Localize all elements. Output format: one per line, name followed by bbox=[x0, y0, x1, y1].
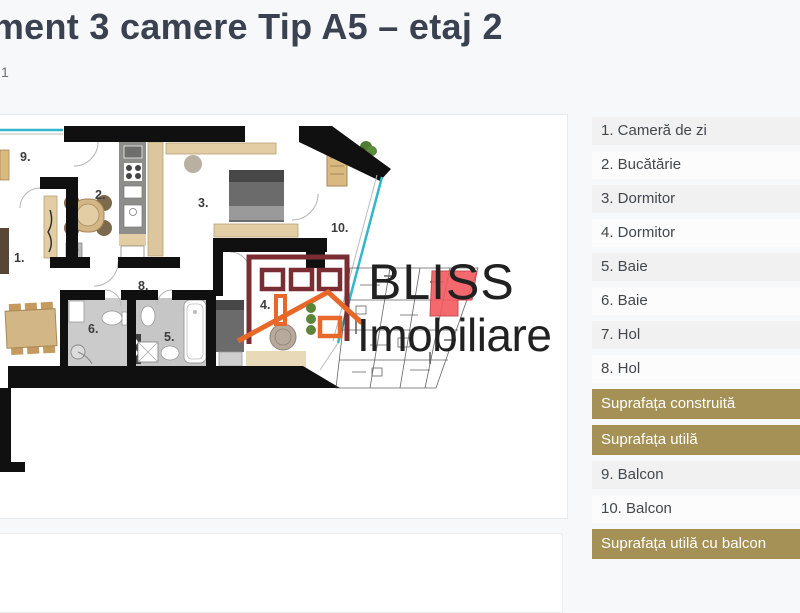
page-title: Apartament 3 camere Tip A5 – etaj 2 bbox=[0, 6, 503, 48]
legend-item-dormitor-4: 4. Dormitor bbox=[592, 219, 800, 247]
room-label-1: 1. bbox=[14, 251, 24, 265]
legend-item-balcon-10: 10. Balcon bbox=[592, 495, 800, 523]
legend-item-bucatarie: 2. Bucătărie bbox=[592, 151, 800, 179]
legend-item-baie-5: 5. Baie bbox=[592, 253, 800, 281]
legend-item-hol-8: 8. Hol bbox=[592, 355, 800, 383]
svg-text:Imobiliare: Imobiliare bbox=[357, 309, 551, 361]
dining-table bbox=[5, 302, 58, 356]
floorplan-image: BLISS Imobiliare 9. 2. 3. 1. 8. 10. 4. 6… bbox=[0, 114, 568, 520]
room-label-3: 3. bbox=[198, 196, 208, 210]
room-label-9: 9. bbox=[20, 150, 30, 164]
brand-watermark-text: BLISS Imobiliare bbox=[357, 254, 551, 361]
room-legend: 1. Cameră de zi 2. Bucătărie 3. Dormitor… bbox=[592, 117, 800, 565]
legend-item-baie-6: 6. Baie bbox=[592, 287, 800, 315]
content-card-below bbox=[0, 533, 563, 613]
room-label-10: 10. bbox=[331, 221, 348, 235]
legend-item-suprafata-utila: Suprafața utilă bbox=[592, 425, 800, 455]
room-label-4: 4. bbox=[260, 298, 270, 312]
subtitle-fragment: 1 bbox=[1, 64, 9, 80]
legend-item-camera-de-zi: 1. Cameră de zi bbox=[592, 117, 800, 145]
legend-item-dormitor-3: 3. Dormitor bbox=[592, 185, 800, 213]
legend-item-balcon-9: 9. Balcon bbox=[592, 461, 800, 489]
legend-item-suprafata-construita: Suprafața construită bbox=[592, 389, 800, 419]
svg-text:BLISS: BLISS bbox=[368, 254, 515, 310]
legend-item-hol-7: 7. Hol bbox=[592, 321, 800, 349]
room-label-2: 2. bbox=[95, 188, 105, 202]
bed-room3 bbox=[184, 155, 284, 222]
legend-item-suprafata-utila-cu-balcon: Suprafața utilă cu balcon bbox=[592, 529, 800, 559]
roof-icon bbox=[238, 292, 362, 341]
room-label-5: 5. bbox=[164, 330, 174, 344]
room-label-6: 6. bbox=[88, 322, 98, 336]
room-label-8: 8. bbox=[138, 279, 148, 293]
